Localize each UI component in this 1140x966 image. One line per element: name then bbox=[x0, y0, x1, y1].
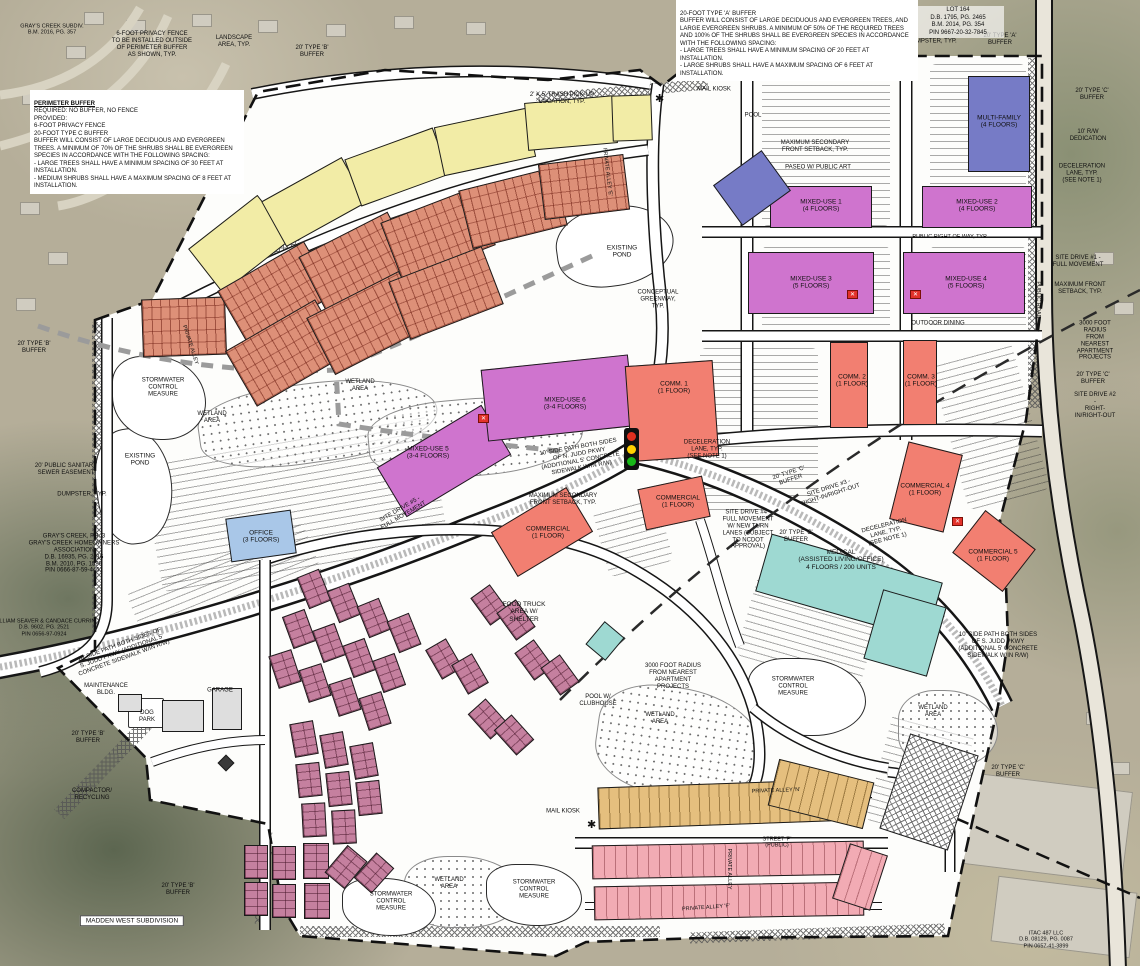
map-label: 20' TYPE 'C' BUFFER bbox=[1076, 372, 1109, 386]
map-label: MADDEN WEST SUBDIVISION bbox=[80, 915, 184, 926]
map-label: WETLAND AREA bbox=[434, 877, 463, 891]
map-label: COMMERCIAL (1 FLOOR) bbox=[656, 495, 700, 510]
feature-marker: ✕ bbox=[952, 517, 963, 526]
map-label: MAIL KIOSK bbox=[697, 87, 731, 94]
map-label: WILLIAM SEAVER & CANDACE CURRIN D.B. 960… bbox=[0, 619, 95, 638]
map-label: 3000 FOOT RADIUS FROM NEAREST APARTMENT … bbox=[1073, 320, 1118, 361]
map-label: MEDICAL (ASSISTED LIVING/OFFICE) 4 FLOOR… bbox=[798, 549, 883, 571]
map-label: MULTI-FAMILY (4 FLOORS) bbox=[977, 115, 1021, 130]
signal-green-light bbox=[627, 457, 636, 466]
map-label: 2' X 5' TRASH PICK-UP LOCATION, TYP. bbox=[530, 92, 594, 106]
map-label: WETLAND AREA bbox=[645, 712, 674, 726]
map-label: LANDSCAPE AREA, TYP. bbox=[216, 35, 252, 49]
map-label: PASEO W/ PUBLIC ART bbox=[785, 165, 851, 172]
map-label: OUTDOOR DINING bbox=[911, 321, 964, 328]
lot-info-note: LOT 164 D.B. 1795, PG. 2465 B.M. 2014, P… bbox=[912, 6, 1004, 38]
map-label: MIXED-USE 4 (5 FLOORS) bbox=[945, 276, 987, 291]
map-label: 10' SIDE PATH BOTH SIDES OF S. JUDD PKWY… bbox=[958, 632, 1037, 660]
building-mauve bbox=[331, 809, 357, 844]
building-mauve bbox=[304, 883, 330, 919]
map-label: 20' PUBLIC SANITARY SEWER EASEMENT bbox=[35, 463, 97, 477]
map-label: COMMERCIAL 4 (1 FLOOR) bbox=[900, 483, 949, 498]
map-label: EXISTING POND bbox=[125, 453, 155, 468]
perimeter-buffer-note-body: REQUIRED: NO BUFFER, NO FENCE PROVIDED: … bbox=[34, 108, 233, 189]
map-label: MIXED-USE 6 (3-4 FLOORS) bbox=[544, 397, 586, 412]
building-mauve bbox=[272, 846, 296, 880]
map-label: STORMWATER CONTROL MEASURE bbox=[772, 677, 815, 698]
map-label: DECELERATION LANE, TYP. (SEE NOTE 1) bbox=[1059, 164, 1105, 185]
map-label: 6-FOOT PRIVACY FENCE TO BE INSTALLED OUT… bbox=[112, 31, 192, 59]
perimeter-buffer-note: PERIMETER BUFFER REQUIRED: NO BUFFER, NO… bbox=[30, 90, 244, 194]
map-label: GRAY'S CREEK SUBDIV. B.M. 2016, PG. 357 bbox=[20, 24, 83, 37]
building-mauve bbox=[301, 802, 327, 837]
map-label: MIXED-USE 1 (4 FLOORS) bbox=[800, 199, 842, 214]
road-casing bbox=[753, 708, 888, 768]
map-label: DOG PARK bbox=[139, 710, 155, 724]
feature-marker: ✕ bbox=[910, 290, 921, 299]
traffic-signal-icon bbox=[624, 428, 639, 470]
map-label: CONCEPTUAL GREENWAY, TYP. bbox=[637, 290, 678, 311]
map-label: 20' TYPE 'B' BUFFER bbox=[17, 341, 50, 355]
map-label: COMMERCIAL (1 FLOOR) bbox=[526, 526, 570, 541]
map-label: MAIL KIOSK bbox=[546, 809, 580, 816]
map-label: MIXED-USE 2 (4 FLOORS) bbox=[956, 199, 998, 214]
map-label: MAXIMUM SECONDARY FRONT SETBACK, TYP. bbox=[781, 140, 850, 154]
map-label: GRAY'S CREEK, PH. 3 GRAY'S CREEK HOMEOWN… bbox=[29, 533, 120, 574]
building-mauve bbox=[272, 884, 296, 918]
map-label: OFFICE (3 FLOORS) bbox=[243, 530, 279, 545]
building-mauve bbox=[325, 771, 352, 807]
map-label: DUMPSTER, TYP. bbox=[57, 492, 106, 499]
signal-yellow-light bbox=[627, 445, 636, 454]
building-mauve bbox=[295, 762, 322, 798]
map-label: MAXIMUM SECONDARY FRONT SETBACK, TYP. bbox=[529, 493, 598, 507]
building-mauve bbox=[244, 882, 268, 916]
map-label: WETLAND AREA bbox=[345, 379, 374, 393]
map-label: POOL W/ CLUBHOUSE bbox=[579, 694, 616, 708]
map-label: 20' TYPE 'B' BUFFER bbox=[295, 45, 328, 59]
map-label: MIXED-USE 5 (3-4 FLOORS) bbox=[407, 446, 449, 461]
map-label: 20' TYPE 'C' BUFFER bbox=[1075, 88, 1108, 102]
signal-red-light bbox=[627, 432, 636, 441]
type-a-buffer-note-body: 20-FOOT TYPE 'A' BUFFER BUFFER WILL CONS… bbox=[680, 11, 909, 77]
map-label: MIXED-USE 3 (5 FLOORS) bbox=[790, 276, 832, 291]
map-label: ITAC 487 LLC D.B. 08129, PG. 0087 PIN 06… bbox=[1019, 931, 1073, 950]
building-grey bbox=[162, 700, 204, 732]
map-label: STORMWATER CONTROL MEASURE bbox=[513, 880, 556, 901]
mail-kiosk-star-icon: ✱ bbox=[655, 94, 664, 105]
map-label: WETLAND AREA bbox=[197, 411, 226, 425]
road-surface bbox=[1044, 0, 1118, 966]
map-label: COMMERCIAL 5 (1 FLOOR) bbox=[968, 549, 1017, 564]
perimeter-buffer-note-title: PERIMETER BUFFER bbox=[34, 101, 95, 107]
map-label: STORMWATER CONTROL MEASURE bbox=[142, 378, 185, 399]
type-a-buffer-note: 20-FOOT TYPE 'A' BUFFER BUFFER WILL CONS… bbox=[676, 0, 918, 81]
map-label: WETLAND AREA bbox=[918, 705, 947, 719]
map-label: SITE DRIVE #1 - FULL MOVEMENT bbox=[1053, 255, 1104, 269]
map-label: POOL bbox=[745, 113, 762, 120]
building-mauve bbox=[355, 780, 382, 816]
map-label: 3000 FOOT RADIUS FROM NEAREST APARTMENT … bbox=[645, 663, 701, 691]
map-label: MAXIMUM FRONT SETBACK, TYP. bbox=[1054, 282, 1105, 296]
map-label: STORMWATER CONTROL MEASURE bbox=[370, 892, 413, 913]
map-label: 10' R/W DEDICATION bbox=[1070, 129, 1107, 143]
map-label: COMM. 1 (1 FLOOR) bbox=[658, 381, 690, 396]
feature-marker: ✕ bbox=[847, 290, 858, 299]
building-mauve bbox=[244, 845, 268, 879]
map-label: FOOD TRUCK AREA W/ SHELTER bbox=[503, 601, 546, 623]
map-label: PUBLIC RIGHT-OF-WAY, TYP. bbox=[912, 234, 987, 240]
map-label: 20' TYPE 'B' BUFFER bbox=[71, 731, 104, 745]
map-label: 20' TYPE 'C' BUFFER bbox=[991, 765, 1024, 779]
map-label: PUBLIC ROAD bbox=[1035, 281, 1041, 318]
map-label: 20' TYPE 'B' BUFFER bbox=[161, 883, 194, 897]
map-label: SITE DRIVE #2 - RIGHT-IN/RIGHT-OUT bbox=[1073, 392, 1118, 420]
map-label: SITE DRIVE #4 - FULL MOVEMENT W/ NEW TUR… bbox=[723, 509, 774, 550]
map-label: DECELERATION LANE, TYP. (SEE NOTE 1) bbox=[684, 440, 730, 461]
building-salmon bbox=[538, 154, 630, 220]
feature-marker: ✕ bbox=[478, 414, 489, 423]
site-plan-map: PERIMETER BUFFER REQUIRED: NO BUFFER, NO… bbox=[0, 0, 1140, 966]
map-label: EXISTING POND bbox=[607, 245, 637, 260]
map-label: COMM. 3 (1 FLOOR) bbox=[905, 374, 937, 389]
map-label: GARAGE bbox=[207, 688, 233, 695]
map-label: 20' TYPE 'C' BUFFER bbox=[779, 530, 812, 544]
map-label: PRIVATE ALLEY bbox=[726, 848, 732, 889]
map-label: COMM. 2 (1 FLOOR) bbox=[836, 374, 868, 389]
map-label: MAINTENANCE BLDG. bbox=[84, 683, 128, 697]
map-label: STREET 'P' (PUBLIC) bbox=[763, 837, 792, 850]
map-label: COMPACTOR/ RECYCLING bbox=[72, 788, 112, 802]
mail-kiosk-star-icon: ✱ bbox=[587, 820, 596, 831]
building-yellow bbox=[611, 94, 653, 141]
